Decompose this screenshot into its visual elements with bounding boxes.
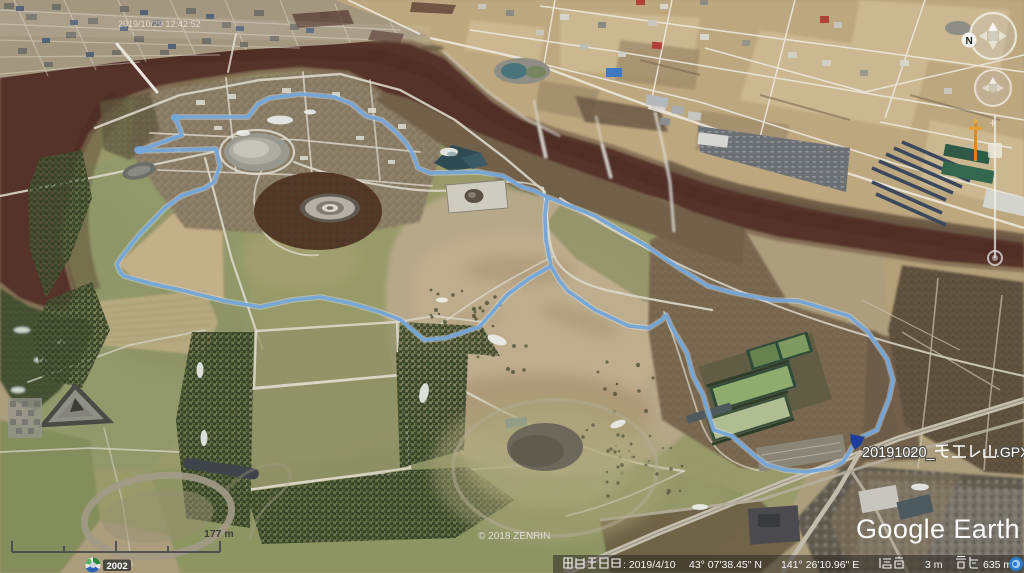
svg-text:Google Earth: Google Earth: [856, 514, 1020, 544]
svg-text:177 m: 177 m: [204, 528, 234, 540]
svg-text:N: N: [966, 36, 973, 47]
svg-text:2002: 2002: [107, 561, 128, 572]
svg-text:: 2019/4/10: : 2019/4/10: [623, 559, 676, 571]
svg-text:+: +: [989, 115, 997, 130]
svg-text:.GPX: .GPX: [996, 444, 1024, 460]
svg-text:43° 07'38.45" N: 43° 07'38.45" N: [689, 559, 762, 571]
svg-text:© 2018 ZENRIN: © 2018 ZENRIN: [478, 531, 550, 542]
svg-text:635 m: 635 m: [983, 559, 1012, 571]
svg-text:20191020_: 20191020_: [862, 445, 936, 461]
svg-text:2019/10/29 12:42:52: 2019/10/29 12:42:52: [118, 19, 201, 29]
svg-text:3 m: 3 m: [925, 559, 943, 571]
svg-text:141° 26'10.96" E: 141° 26'10.96" E: [781, 559, 859, 571]
